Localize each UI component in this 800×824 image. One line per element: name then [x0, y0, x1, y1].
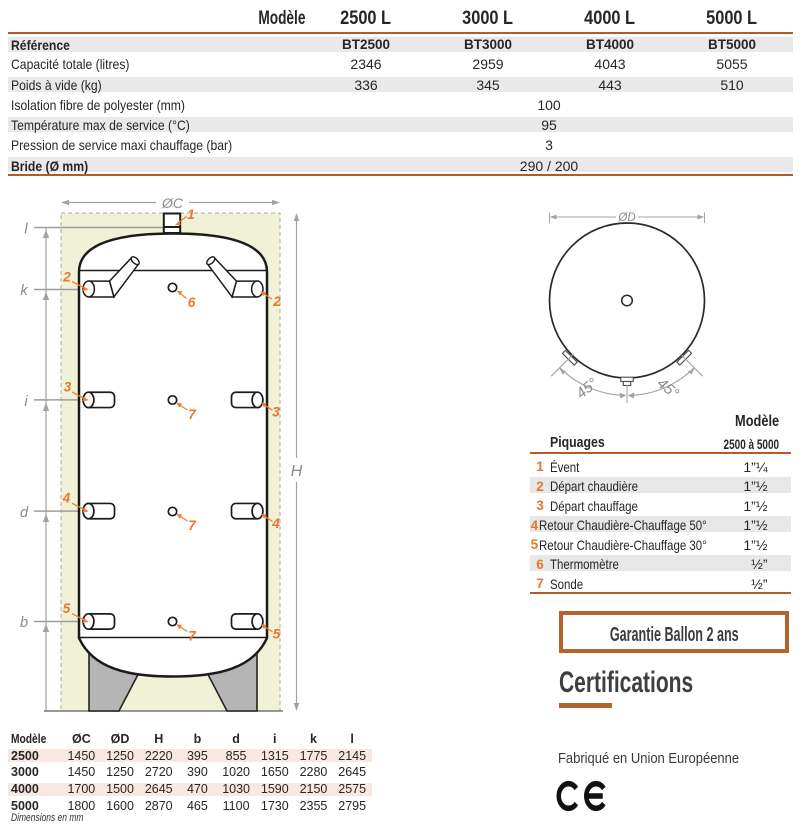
svg-text:2: 2: [62, 270, 71, 285]
svg-text:4: 4: [271, 516, 280, 531]
svg-text:b: b: [20, 615, 28, 631]
svg-text:45°: 45°: [654, 375, 682, 403]
svg-text:d: d: [20, 505, 29, 521]
svg-text:5: 5: [63, 601, 71, 616]
svg-text:2: 2: [272, 294, 281, 309]
svg-text:H: H: [291, 463, 303, 480]
svg-text:5: 5: [273, 627, 281, 642]
svg-text:l: l: [24, 222, 28, 238]
svg-text:k: k: [20, 283, 28, 299]
svg-text:ØC: ØC: [161, 195, 184, 211]
svg-text:4: 4: [62, 491, 71, 506]
svg-text:1: 1: [187, 207, 195, 222]
svg-text:3: 3: [64, 380, 72, 395]
svg-text:45°: 45°: [573, 375, 601, 403]
svg-text:6: 6: [188, 295, 196, 310]
svg-text:3: 3: [272, 405, 280, 420]
svg-text:i: i: [24, 394, 28, 410]
